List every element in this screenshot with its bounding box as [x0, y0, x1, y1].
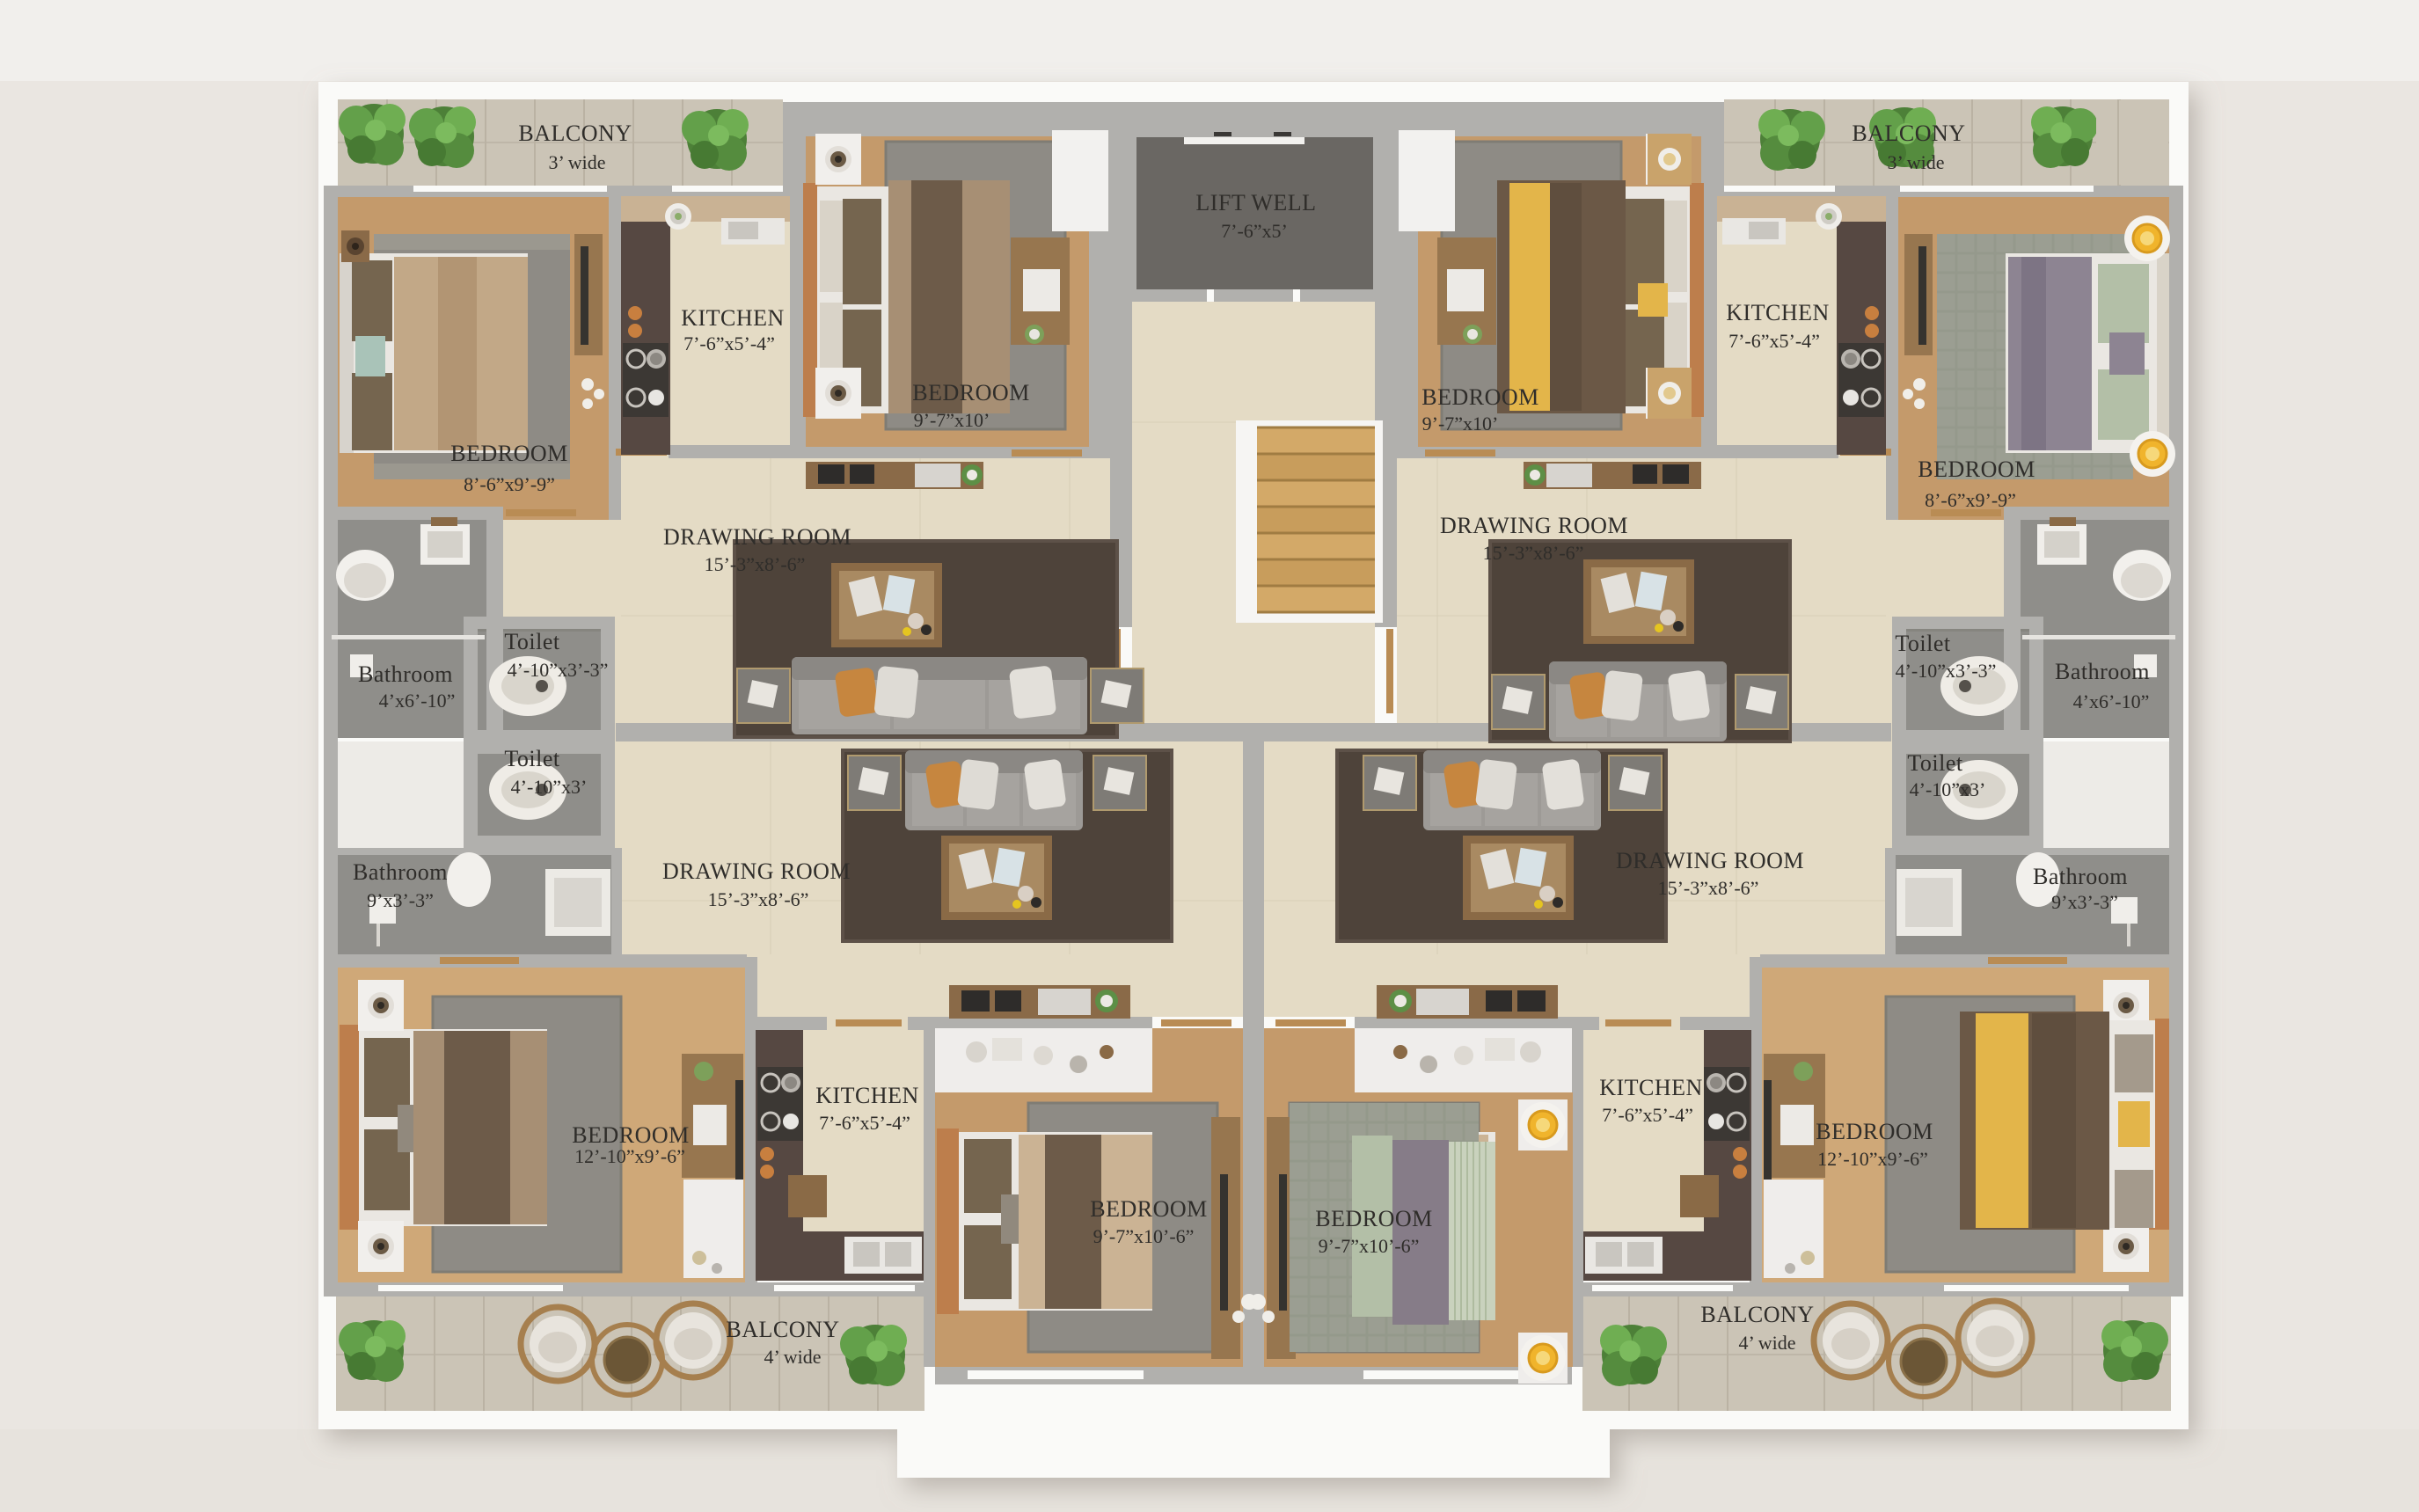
svg-text:4’-10”x3’-3”: 4’-10”x3’-3”: [1896, 660, 1997, 682]
svg-text:DRAWING ROOM: DRAWING ROOM: [1616, 848, 1804, 873]
svg-text:4’x6’-10”: 4’x6’-10”: [2073, 690, 2150, 712]
svg-text:3’ wide: 3’ wide: [1888, 151, 1945, 173]
svg-text:4’ wide: 4’ wide: [1739, 1332, 1796, 1354]
svg-text:12’-10”x9’-6”: 12’-10”x9’-6”: [574, 1145, 685, 1167]
svg-text:7’-6”x5’-4”: 7’-6”x5’-4”: [819, 1112, 910, 1134]
svg-text:Toilet: Toilet: [504, 746, 560, 771]
svg-text:BEDROOM: BEDROOM: [450, 441, 568, 466]
svg-text:KITCHEN: KITCHEN: [1726, 300, 1830, 325]
svg-text:DRAWING ROOM: DRAWING ROOM: [662, 858, 851, 884]
svg-text:15’-3”x8’-6”: 15’-3”x8’-6”: [708, 888, 809, 910]
svg-text:BALCONY: BALCONY: [1700, 1302, 1814, 1327]
svg-text:Toilet: Toilet: [504, 629, 560, 654]
svg-text:9’-7”x10’-6”: 9’-7”x10’-6”: [1093, 1225, 1195, 1247]
svg-text:3’ wide: 3’ wide: [549, 151, 606, 173]
svg-text:BALCONY: BALCONY: [1852, 121, 1965, 146]
svg-text:9’x3’-3”: 9’x3’-3”: [367, 889, 434, 911]
svg-text:KITCHEN: KITCHEN: [1599, 1075, 1703, 1100]
svg-text:15’-3”x8’-6”: 15’-3”x8’-6”: [1658, 877, 1759, 899]
svg-text:BALCONY: BALCONY: [518, 121, 632, 146]
svg-text:7’-6”x5’-4”: 7’-6”x5’-4”: [1602, 1104, 1693, 1126]
svg-text:LIFT WELL: LIFT WELL: [1195, 190, 1316, 215]
svg-text:BEDROOM: BEDROOM: [1315, 1206, 1433, 1231]
svg-text:Bathroom: Bathroom: [358, 661, 453, 687]
svg-text:Bathroom: Bathroom: [2033, 864, 2128, 889]
svg-text:BEDROOM: BEDROOM: [572, 1122, 690, 1148]
svg-text:DRAWING ROOM: DRAWING ROOM: [1440, 513, 1628, 538]
svg-text:9’-7”x10’: 9’-7”x10’: [914, 409, 990, 431]
svg-text:4’x6’-10”: 4’x6’-10”: [379, 690, 456, 712]
svg-text:Bathroom: Bathroom: [2055, 659, 2150, 684]
svg-text:7’-6”x5’-4”: 7’-6”x5’-4”: [683, 332, 775, 354]
svg-text:8’-6”x9’-9”: 8’-6”x9’-9”: [1925, 489, 2016, 511]
svg-text:9’-7”x10’-6”: 9’-7”x10’-6”: [1319, 1235, 1420, 1257]
svg-text:Toilet: Toilet: [1907, 750, 1963, 776]
svg-text:4’-10”x3’: 4’-10”x3’: [511, 776, 588, 798]
svg-text:15’-3”x8’-6”: 15’-3”x8’-6”: [705, 553, 806, 575]
svg-text:BEDROOM: BEDROOM: [1090, 1196, 1208, 1222]
svg-text:9’x3’-3”: 9’x3’-3”: [2051, 891, 2118, 913]
svg-text:9’-7”x10’: 9’-7”x10’: [1422, 413, 1499, 435]
svg-text:4’-10”x3’-3”: 4’-10”x3’-3”: [508, 659, 609, 681]
svg-text:15’-3”x8’-6”: 15’-3”x8’-6”: [1483, 542, 1584, 564]
svg-text:8’-6”x9’-9”: 8’-6”x9’-9”: [464, 473, 555, 495]
svg-text:DRAWING ROOM: DRAWING ROOM: [663, 524, 851, 550]
svg-text:Bathroom: Bathroom: [353, 859, 448, 885]
svg-text:BEDROOM: BEDROOM: [1421, 384, 1539, 410]
svg-text:KITCHEN: KITCHEN: [815, 1083, 919, 1108]
svg-text:BALCONY: BALCONY: [726, 1317, 839, 1342]
svg-text:BEDROOM: BEDROOM: [1918, 457, 2035, 482]
svg-text:7’-6”x5’: 7’-6”x5’: [1221, 220, 1288, 242]
svg-text:Toilet: Toilet: [1895, 631, 1951, 656]
svg-text:7’-6”x5’-4”: 7’-6”x5’-4”: [1728, 330, 1820, 352]
svg-text:12’-10”x9’-6”: 12’-10”x9’-6”: [1817, 1148, 1928, 1170]
svg-text:KITCHEN: KITCHEN: [681, 305, 785, 331]
svg-text:BEDROOM: BEDROOM: [1816, 1119, 1933, 1144]
svg-text:BEDROOM: BEDROOM: [912, 380, 1030, 405]
svg-text:4’ wide: 4’ wide: [764, 1346, 822, 1368]
svg-text:4’-10”x3’: 4’-10”x3’: [1910, 778, 1986, 800]
